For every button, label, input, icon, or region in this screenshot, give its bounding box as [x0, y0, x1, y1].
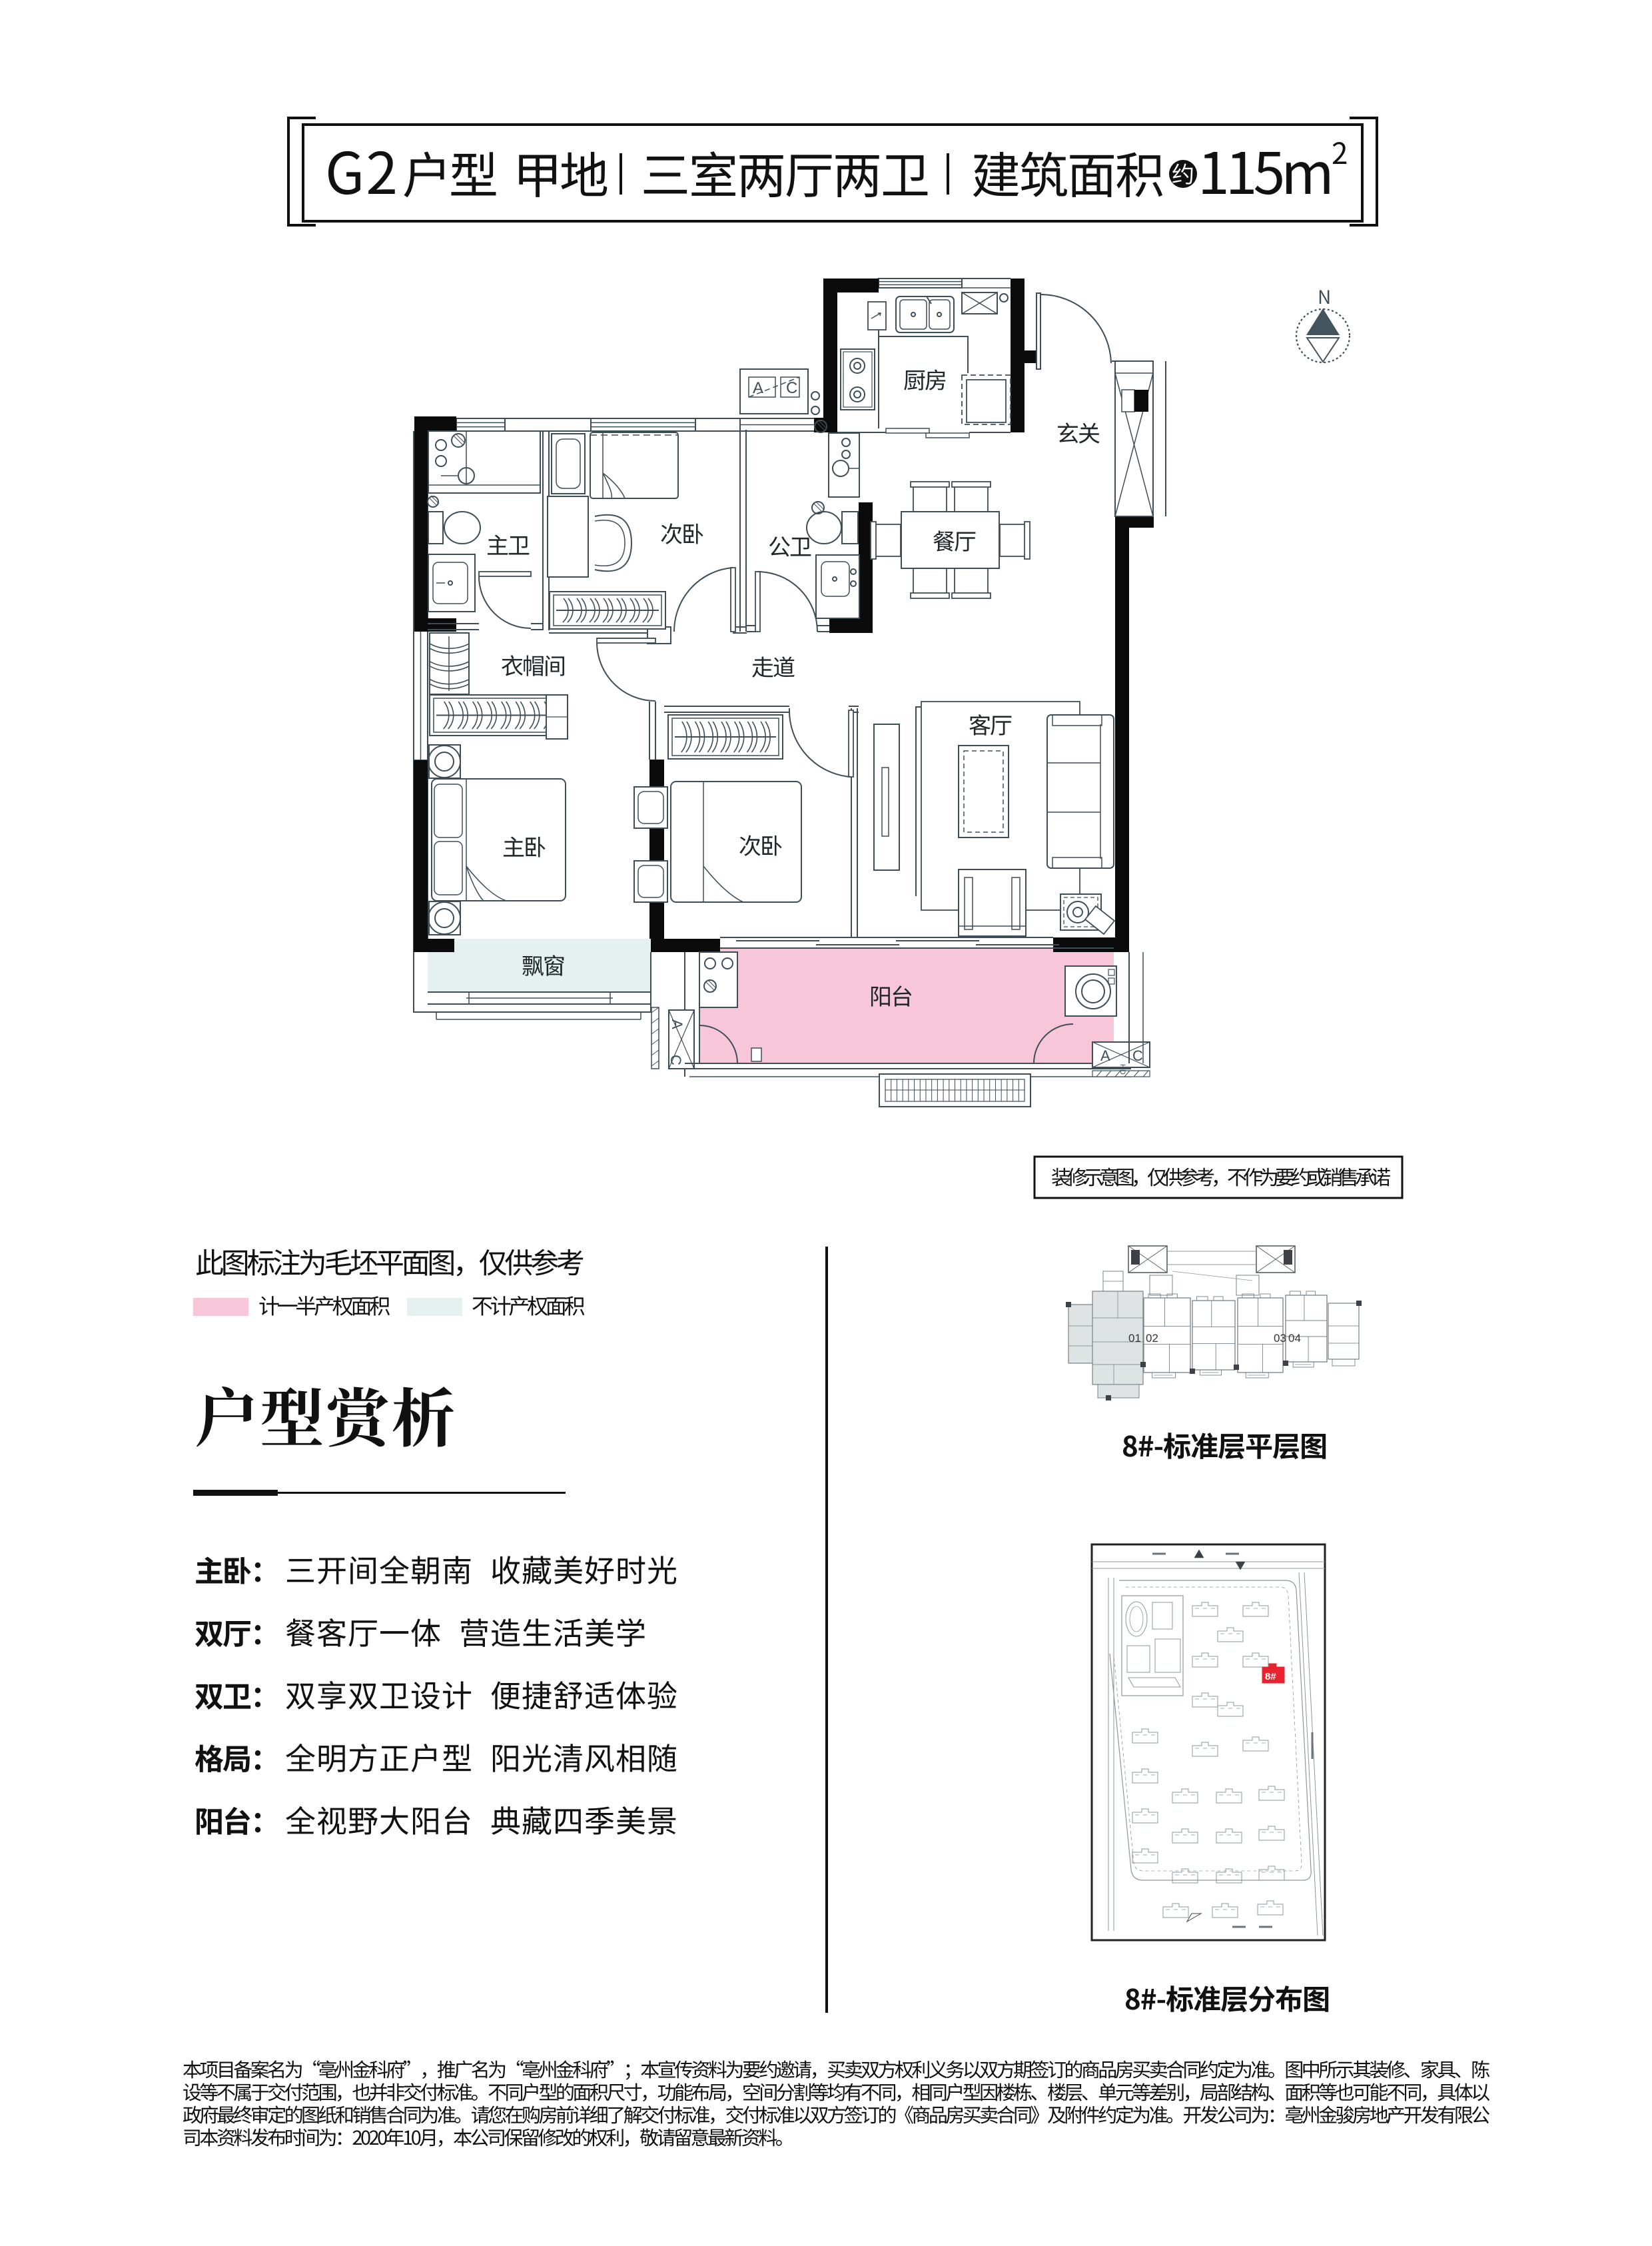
svg-text:C: C: [1132, 1047, 1143, 1064]
svg-text:04: 04: [1288, 1332, 1301, 1345]
svg-text:C: C: [786, 379, 797, 397]
svg-text:A: A: [669, 1019, 685, 1029]
svg-text:03: 03: [1274, 1332, 1286, 1345]
svg-text:A: A: [753, 379, 763, 397]
svg-text:C: C: [667, 1055, 684, 1065]
svg-text:A: A: [1100, 1047, 1110, 1064]
svg-text:01: 01: [1128, 1332, 1141, 1345]
svg-text:8#: 8#: [1265, 1671, 1276, 1682]
svg-text:02: 02: [1146, 1332, 1158, 1345]
svg-text:HD: HD: [1118, 1064, 1126, 1075]
